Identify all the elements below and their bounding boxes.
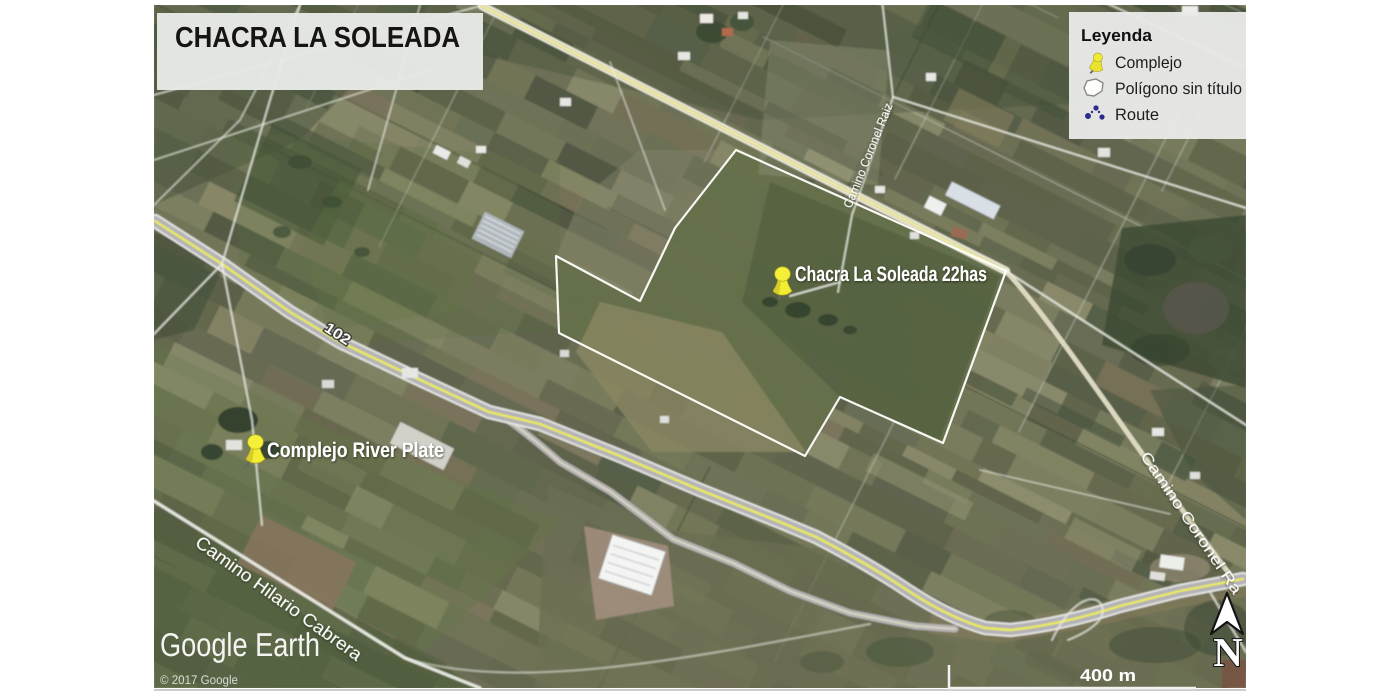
svg-text:400 m: 400 m [1080,666,1136,685]
svg-text:Complejo River Plate: Complejo River Plate [267,439,444,462]
svg-text:Chacra La Soleada 22has: Chacra La Soleada 22has [795,263,987,286]
svg-text:© 2017 Google: © 2017 Google [160,673,238,687]
svg-text:Google Earth: Google Earth [160,626,320,663]
svg-text:Route: Route [1115,106,1159,124]
svg-text:N: N [1213,629,1243,675]
svg-text:Complejo: Complejo [1115,54,1182,72]
svg-text:Leyenda: Leyenda [1081,26,1153,45]
svg-text:Polígono sin título: Polígono sin título [1115,80,1242,98]
svg-text:CHACRA LA SOLEADA: CHACRA LA SOLEADA [175,22,460,54]
